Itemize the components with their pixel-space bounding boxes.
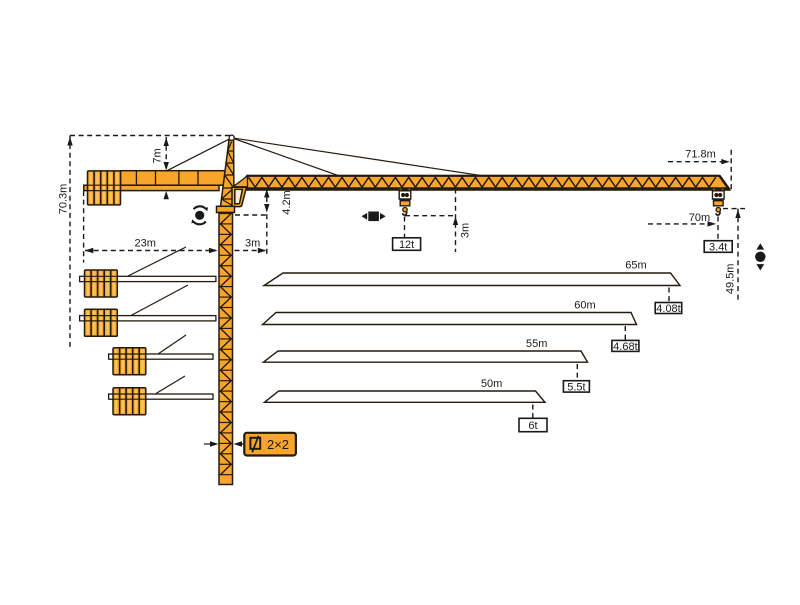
svg-text:4.08t: 4.08t (656, 303, 680, 315)
svg-text:65m: 65m (625, 260, 646, 272)
svg-text:4.2m: 4.2m (281, 190, 293, 214)
svg-text:6t: 6t (528, 420, 537, 432)
svg-text:12t: 12t (399, 239, 414, 251)
svg-text:55m: 55m (526, 338, 547, 350)
svg-text:70.3m: 70.3m (58, 184, 70, 215)
svg-text:71.8m: 71.8m (685, 148, 716, 160)
svg-text:3.4t: 3.4t (709, 242, 727, 254)
svg-text:2×2: 2×2 (267, 437, 289, 452)
svg-text:49.5m: 49.5m (725, 264, 737, 295)
svg-text:5.5t: 5.5t (567, 381, 585, 393)
svg-text:70m: 70m (689, 212, 710, 224)
svg-text:23m: 23m (134, 238, 155, 250)
svg-text:60m: 60m (574, 300, 595, 312)
svg-text:3m: 3m (460, 223, 472, 238)
svg-text:7m: 7m (152, 148, 164, 163)
svg-text:4.68t: 4.68t (613, 341, 637, 353)
svg-text:3m: 3m (245, 238, 260, 250)
svg-text:50m: 50m (481, 378, 502, 390)
